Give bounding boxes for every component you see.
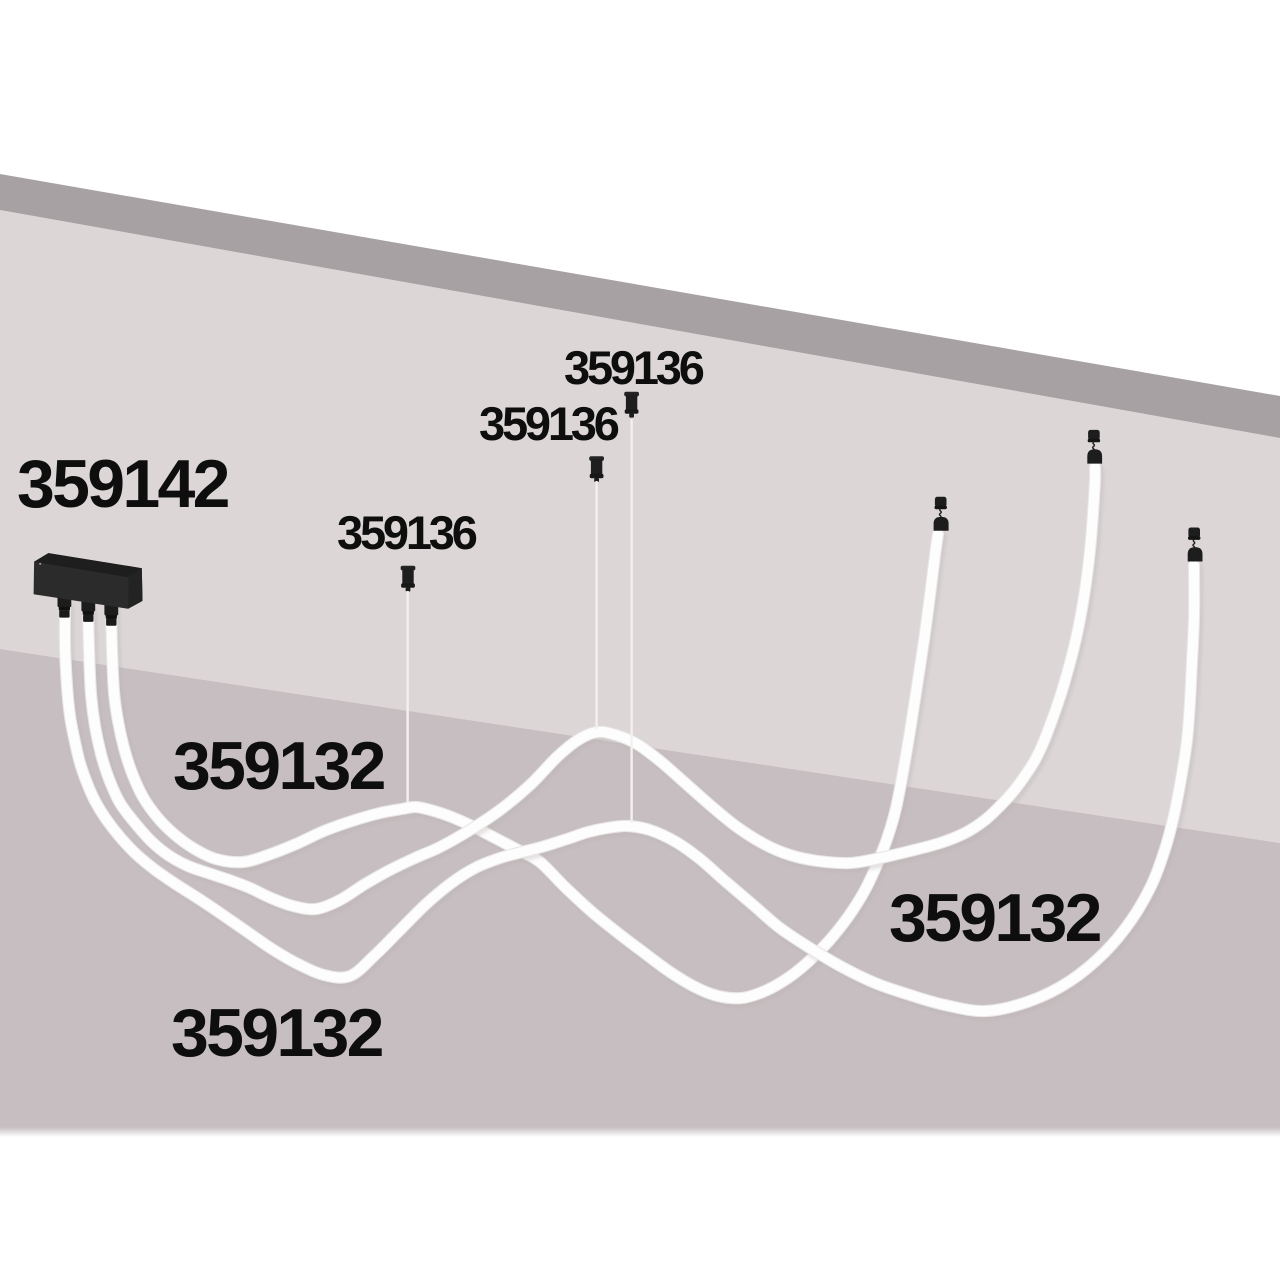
svg-text:359136: 359136 bbox=[479, 397, 619, 450]
svg-text:359132: 359132 bbox=[173, 728, 385, 804]
svg-text:359132: 359132 bbox=[889, 880, 1101, 956]
svg-text:359136: 359136 bbox=[564, 341, 704, 394]
svg-text:359136: 359136 bbox=[337, 506, 477, 559]
svg-text:359132: 359132 bbox=[171, 995, 383, 1071]
svg-text:359142: 359142 bbox=[17, 446, 229, 522]
